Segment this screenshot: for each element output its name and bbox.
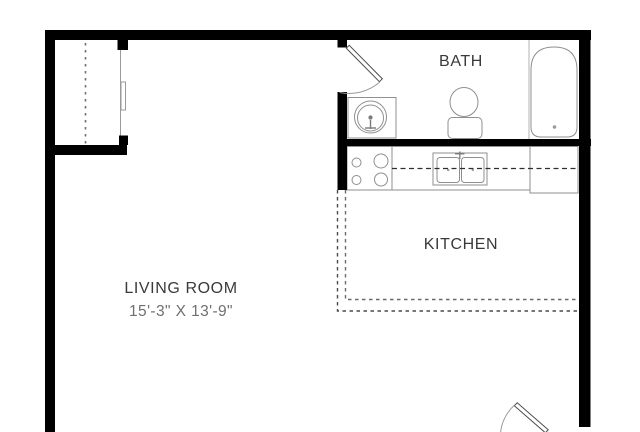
sink-drain	[447, 169, 449, 171]
closet-jamb-bottom	[119, 136, 128, 146]
bath-door-jamb	[338, 40, 348, 48]
living-room-dimensions: 15'-3" X 13'-9"	[102, 303, 260, 321]
closet-wall	[45, 145, 127, 155]
toilet-tank	[448, 118, 482, 139]
entry-door-swing-arc	[501, 405, 515, 432]
wall-top	[45, 30, 591, 40]
sink-drain	[472, 169, 474, 171]
wall-left	[45, 30, 55, 432]
bath-door	[346, 45, 382, 81]
closet-sliding-door	[121, 82, 126, 110]
floor-plan: BATH KITCHEN LIVING ROOM 15'-3" X 13'-9"	[0, 0, 640, 432]
bath-door-swing-arc	[340, 82, 380, 93]
refrigerator-counter	[530, 147, 578, 194]
stove-burner	[352, 158, 361, 167]
stove-burner	[352, 176, 361, 185]
closet-jamb-top	[118, 40, 129, 50]
bathtub	[531, 47, 577, 137]
floor-plan-drawing	[0, 0, 640, 432]
bath-kitchen-divider-wall	[338, 139, 592, 146]
stove-burner	[375, 173, 388, 186]
bathtub-drain	[553, 125, 557, 129]
entry-door	[514, 403, 548, 432]
toilet-bowl	[450, 88, 478, 117]
living-room-label: LIVING ROOM	[104, 280, 258, 298]
wall-right	[579, 30, 591, 427]
kitchen-label: KITCHEN	[400, 236, 522, 254]
stove-burner	[374, 154, 388, 168]
bath-label: BATH	[411, 53, 511, 71]
